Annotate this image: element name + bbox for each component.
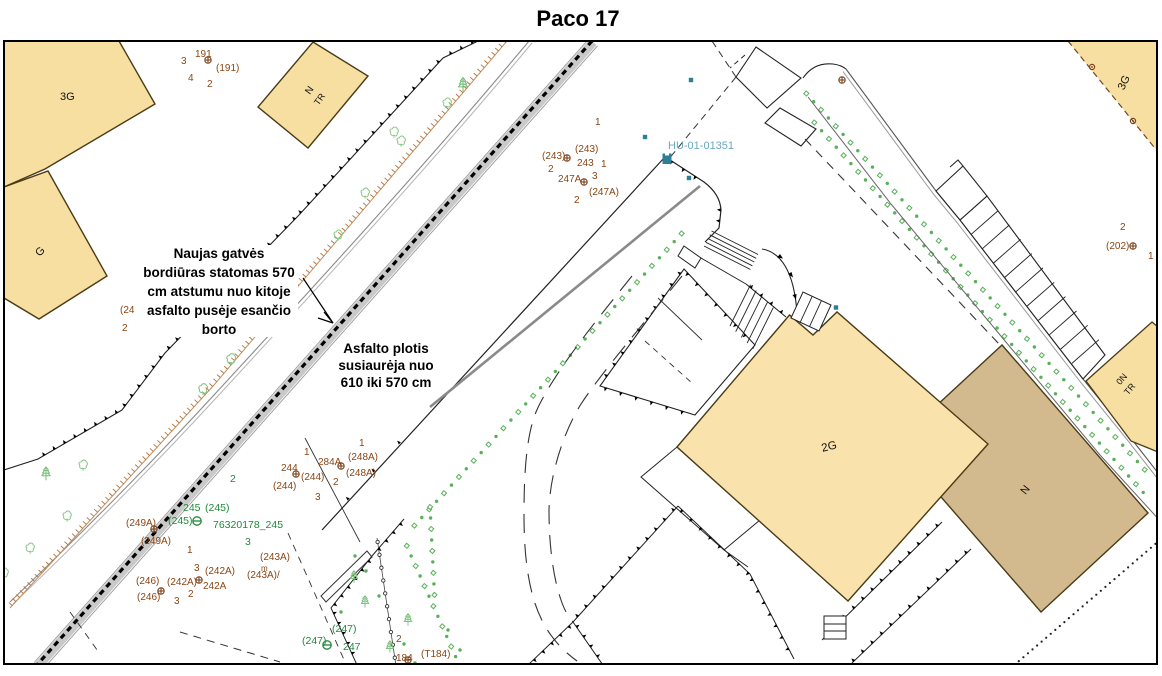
svg-text:184: 184 — [396, 653, 413, 664]
svg-text:(248A): (248A) — [348, 452, 378, 463]
svg-text:(242A): (242A) — [167, 577, 197, 588]
svg-text:242A: 242A — [203, 581, 227, 592]
svg-text:610 iki 570 cm: 610 iki 570 cm — [341, 375, 432, 390]
svg-text:243: 243 — [577, 158, 594, 169]
svg-text:(245): (245) — [205, 502, 230, 514]
svg-text:3G: 3G — [60, 91, 75, 103]
svg-text:(24: (24 — [120, 305, 135, 316]
svg-text:4: 4 — [188, 73, 194, 84]
svg-text:2: 2 — [122, 323, 128, 334]
svg-text:247A: 247A — [558, 174, 582, 185]
svg-text:(247): (247) — [302, 635, 327, 647]
svg-text:(243A): (243A) — [260, 552, 290, 563]
svg-text:(249A): (249A) — [141, 536, 171, 547]
svg-text:76320178_245: 76320178_245 — [213, 519, 283, 531]
svg-text:(202): (202) — [1106, 241, 1129, 252]
svg-text:1: 1 — [595, 117, 601, 128]
svg-text:244: 244 — [281, 463, 298, 474]
svg-text:2: 2 — [396, 634, 402, 645]
svg-text:2: 2 — [188, 589, 194, 600]
svg-text:Paco 17: Paco 17 — [536, 6, 619, 31]
svg-text:1: 1 — [601, 159, 607, 170]
svg-text:2: 2 — [207, 79, 213, 90]
svg-text:bordiūras statomas 570: bordiūras statomas 570 — [143, 265, 295, 280]
svg-text:2: 2 — [548, 164, 554, 175]
svg-text:2: 2 — [574, 195, 580, 206]
svg-text:(244): (244) — [301, 472, 324, 483]
svg-text:3: 3 — [245, 536, 251, 548]
svg-text:191: 191 — [195, 49, 212, 60]
svg-text:3: 3 — [194, 563, 200, 574]
svg-text:(245): (245) — [168, 515, 193, 527]
svg-text:Asfalto plotis: Asfalto plotis — [343, 341, 429, 356]
svg-text:(242A): (242A) — [205, 566, 235, 577]
svg-text:(248A): (248A) — [346, 468, 376, 479]
svg-text:1: 1 — [187, 545, 193, 556]
svg-text:(246): (246) — [136, 576, 159, 587]
svg-text:(243): (243) — [575, 144, 598, 155]
svg-text:borto: borto — [202, 322, 237, 337]
svg-text:2: 2 — [230, 473, 236, 485]
svg-text:susiaurėja nuo: susiaurėja nuo — [338, 358, 433, 373]
svg-text:(191): (191) — [216, 63, 239, 74]
svg-text:3: 3 — [315, 492, 321, 503]
svg-text:cm atstumu nuo kitoje: cm atstumu nuo kitoje — [147, 284, 291, 299]
svg-text:3: 3 — [181, 56, 187, 67]
svg-text:(243): (243) — [542, 151, 565, 162]
svg-text:asfalto pusėje esančio: asfalto pusėje esančio — [147, 303, 291, 318]
svg-text:3: 3 — [592, 171, 598, 182]
svg-text:284A: 284A — [318, 457, 342, 468]
svg-text:(247A): (247A) — [589, 187, 619, 198]
svg-text:1: 1 — [1148, 251, 1154, 262]
svg-text:1: 1 — [359, 438, 365, 449]
svg-text:(246): (246) — [137, 592, 160, 603]
svg-text:(243A)/: (243A)/ — [247, 570, 280, 581]
svg-text:(T184): (T184) — [421, 649, 450, 660]
svg-text:Naujas gatvės: Naujas gatvės — [174, 246, 265, 261]
svg-text:(249A): (249A) — [126, 518, 156, 529]
svg-text:1: 1 — [304, 447, 310, 458]
svg-text:2: 2 — [333, 477, 339, 488]
svg-text:(247): (247) — [332, 623, 357, 635]
svg-text:247: 247 — [343, 641, 361, 653]
svg-text:3: 3 — [174, 596, 180, 607]
svg-text:245: 245 — [183, 502, 201, 514]
svg-text:2: 2 — [1120, 222, 1126, 233]
svg-text:HU-01-01351: HU-01-01351 — [668, 140, 734, 152]
svg-text:(244): (244) — [273, 481, 296, 492]
